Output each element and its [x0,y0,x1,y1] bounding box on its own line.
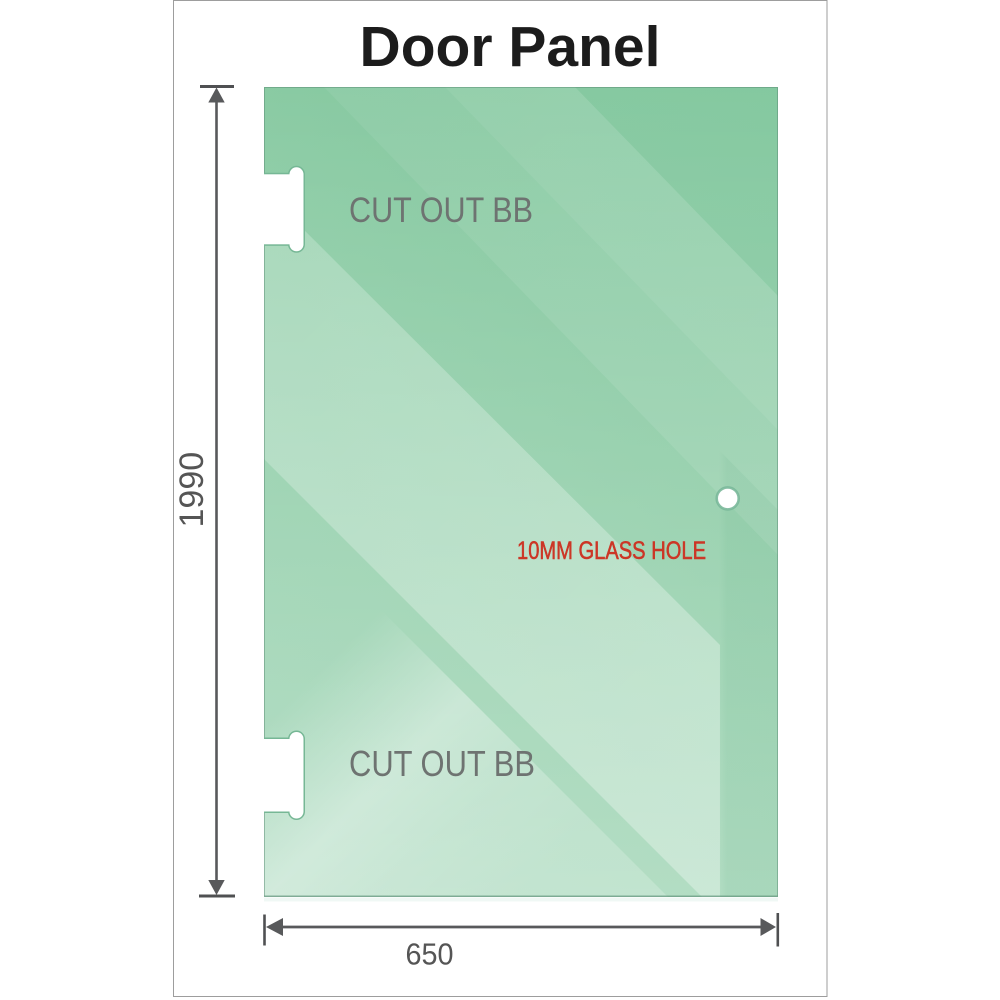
svg-text:1990: 1990 [173,452,211,528]
svg-text:10MM GLASS HOLE: 10MM GLASS HOLE [517,537,706,565]
svg-text:650: 650 [406,938,454,972]
svg-text:CUT OUT BB: CUT OUT BB [349,190,533,230]
svg-text:Door Panel: Door Panel [360,15,661,79]
svg-text:CUT OUT BB: CUT OUT BB [349,743,535,784]
